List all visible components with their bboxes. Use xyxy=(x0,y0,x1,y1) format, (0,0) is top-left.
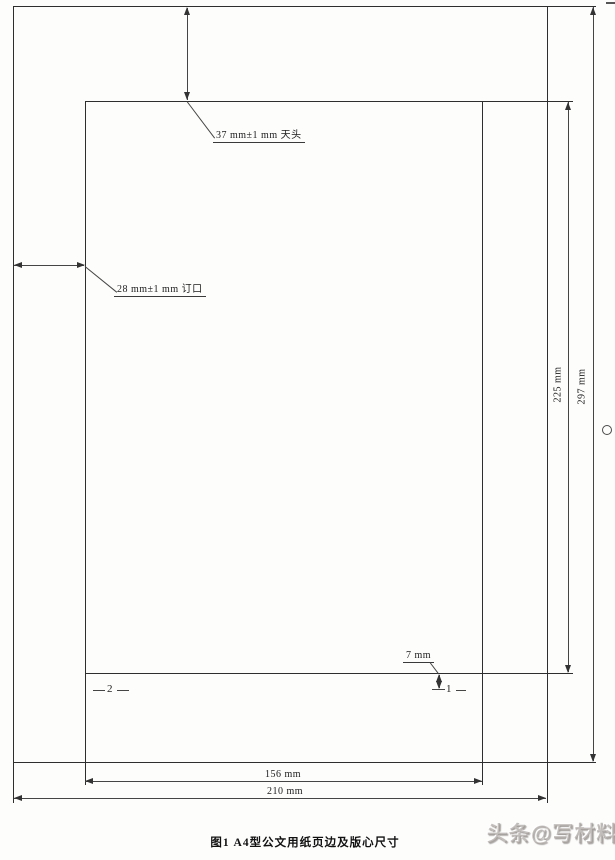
dim-binding-margin-leader xyxy=(85,266,117,293)
text-area-edge-bottom xyxy=(85,673,573,674)
text-area-edge-left xyxy=(85,101,86,785)
dim-page-number-offset-tick xyxy=(432,689,445,690)
page-height-label: 297 mm xyxy=(576,357,589,417)
text-area-edge-right xyxy=(482,101,483,785)
dim-text-area-height-line xyxy=(568,102,569,672)
page-width-label: 210 mm xyxy=(235,786,335,797)
page-edge-right xyxy=(547,6,548,803)
arrowhead-up-icon xyxy=(590,7,596,15)
page-marker-even-number: 2 xyxy=(107,683,113,695)
arrowhead-right-icon xyxy=(474,778,482,784)
arrowhead-down-icon xyxy=(565,665,571,673)
page-edge-top xyxy=(13,6,596,7)
top-margin-label: 37 mm±1 mm 天头 xyxy=(213,126,305,143)
arrowhead-left-icon xyxy=(85,778,93,784)
arrowhead-right-icon xyxy=(77,262,85,268)
arrowhead-left-icon xyxy=(14,262,22,268)
dim-binding-margin-line xyxy=(14,265,84,266)
arrowhead-down-icon xyxy=(184,92,190,100)
arrowhead-down-icon xyxy=(590,754,596,762)
watermark-text: 头条@写材料 xyxy=(487,818,615,848)
figure-canvas: 37 mm±1 mm 天头 28 mm±1 mm 订口 7 mm 1 2 225… xyxy=(0,0,615,860)
arrowhead-left-icon xyxy=(14,795,22,801)
arrowhead-up-icon xyxy=(565,102,571,110)
page-number-offset-label: 7 mm xyxy=(403,650,434,663)
page-marker-even-dash-left xyxy=(93,690,105,691)
text-area-edge-top xyxy=(85,101,573,102)
scan-artifact xyxy=(606,2,615,4)
arrowhead-right-icon xyxy=(538,795,546,801)
dim-page-width-line xyxy=(14,798,546,799)
dim-top-margin-line xyxy=(187,8,188,100)
dim-text-area-width-line xyxy=(85,781,482,782)
figure-caption: 图1 A4型公文用纸页边及版心尺寸 xyxy=(150,834,460,850)
arrowhead-down-icon xyxy=(436,681,442,689)
text-area-width-label: 156 mm xyxy=(233,769,333,780)
dim-top-margin-leader xyxy=(187,101,215,138)
page-edge-left xyxy=(13,6,14,803)
binding-margin-label: 28 mm±1 mm 订口 xyxy=(114,280,206,297)
page-marker-odd-dash xyxy=(456,690,466,691)
dim-page-height-line xyxy=(593,7,594,761)
circle-mark xyxy=(602,425,612,435)
page-marker-even-dash-right xyxy=(117,690,129,691)
page-edge-bottom xyxy=(13,762,596,763)
page-marker-odd-number: 1 xyxy=(446,683,452,695)
text-area-height-label: 225 mm xyxy=(552,355,565,415)
arrowhead-up-icon xyxy=(184,7,190,15)
